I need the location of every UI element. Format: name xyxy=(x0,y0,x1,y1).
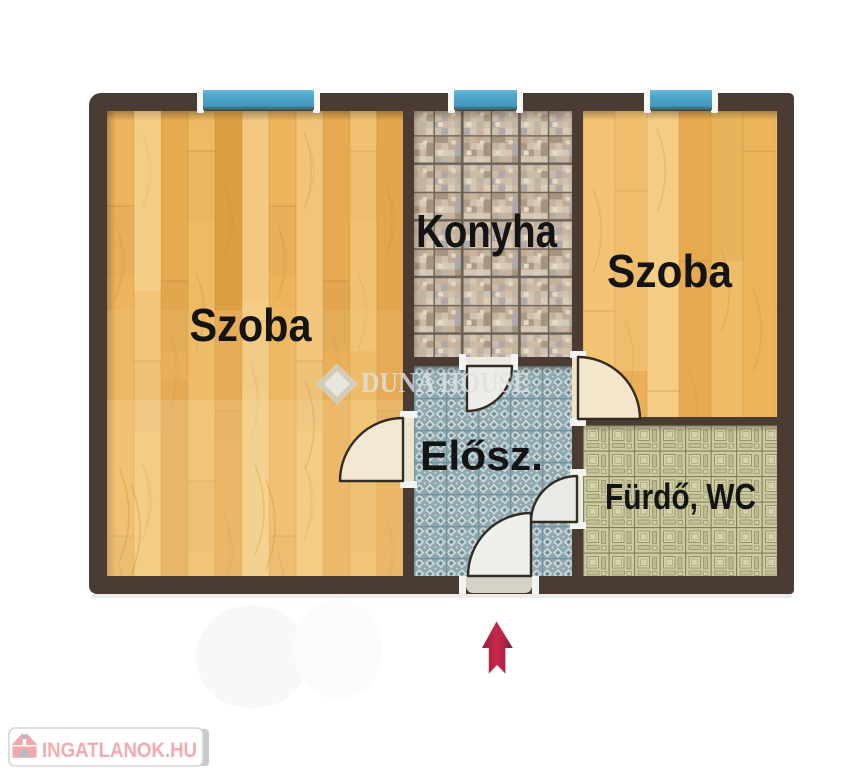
svg-text:INGATLANOK.HU: INGATLANOK.HU xyxy=(42,738,197,762)
svg-text:Szoba: Szoba xyxy=(190,299,312,351)
svg-text:Konyha: Konyha xyxy=(416,205,557,257)
svg-text:Elősz.: Elősz. xyxy=(420,432,543,479)
svg-text:DUNA HOUSE: DUNA HOUSE xyxy=(361,367,530,399)
svg-text:Szoba: Szoba xyxy=(607,245,732,297)
svg-text:Fürdő, WC: Fürdő, WC xyxy=(605,476,756,517)
